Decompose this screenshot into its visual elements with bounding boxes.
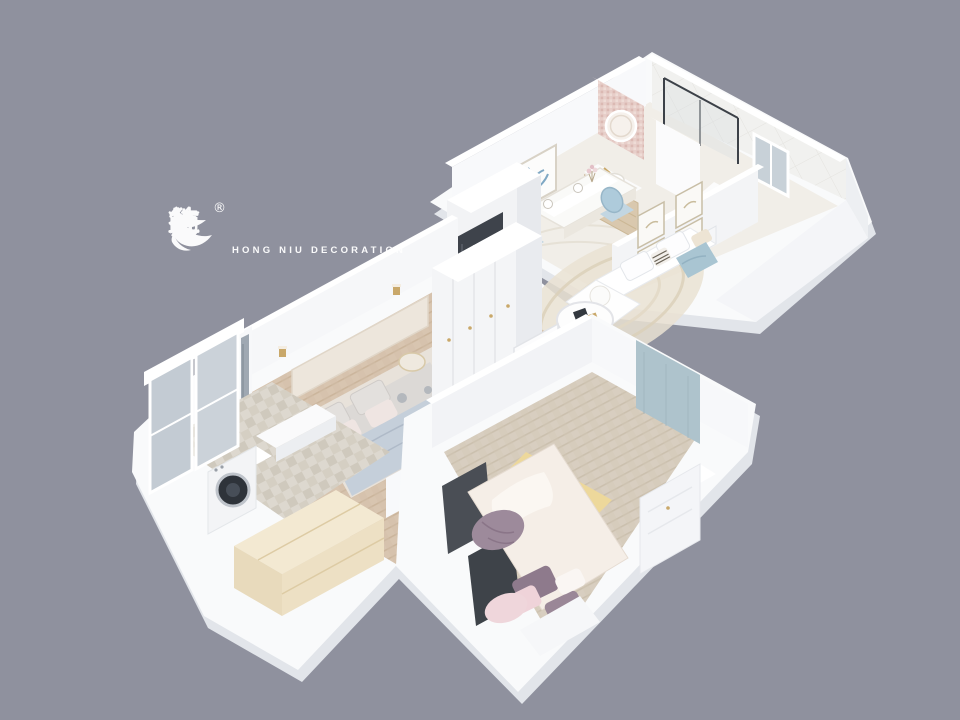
floorplan-render-canvas: ® 红牛装饰: [0, 0, 960, 720]
floorplan-3d-scene: [0, 0, 960, 720]
pouf: [399, 353, 425, 371]
brand-name-cn: 红牛装饰: [232, 204, 406, 240]
plate: [574, 184, 583, 193]
registered-mark: ®: [213, 202, 226, 215]
round-lighted-mirror: [606, 111, 636, 141]
brand-logo: ® 红牛装饰: [166, 204, 406, 260]
plate: [544, 200, 553, 209]
hanzi-shi: [166, 204, 200, 240]
wall-sconce: [278, 346, 287, 357]
brand-name-en: HONG NIU DECORATION: [232, 245, 406, 256]
wall-sconce: [392, 284, 401, 295]
